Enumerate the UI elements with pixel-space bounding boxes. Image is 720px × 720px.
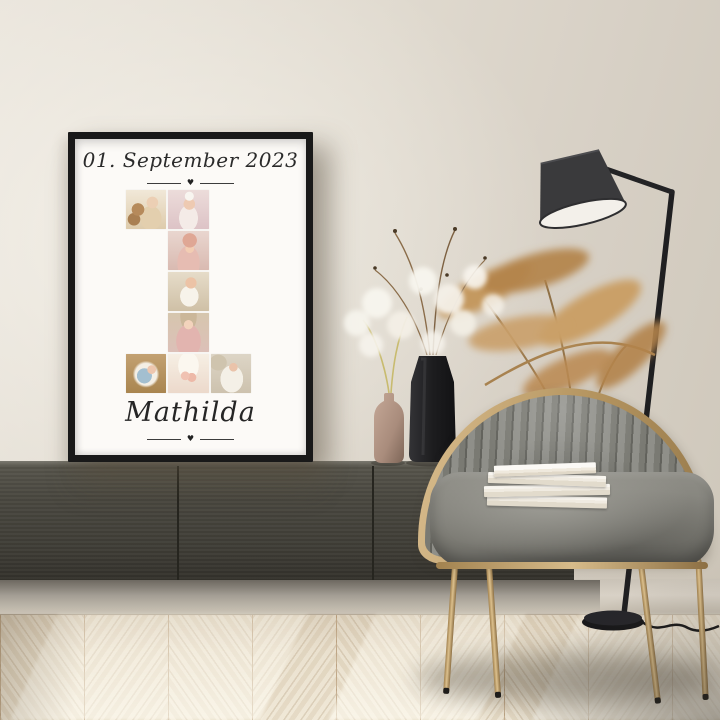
photo-baby-with-teddy <box>126 190 166 229</box>
floor-plank-column <box>0 615 84 720</box>
photo-collage <box>126 190 251 393</box>
divider-line <box>147 183 181 184</box>
divider-line <box>200 183 234 184</box>
sideboard-door-seam <box>177 466 179 580</box>
header-divider: ♥ <box>75 179 306 187</box>
heart-icon: ♥ <box>187 435 194 443</box>
poster-date-text: 01. September 2023 <box>75 148 306 172</box>
photo-newborn-white-basket <box>211 354 251 393</box>
floor-plank-column <box>84 615 168 720</box>
photo-newborn-pink-swaddle <box>168 313 208 352</box>
poster-paper: 01. September 2023 ♥ Mathilda ♥ <box>75 139 306 455</box>
floor-plank-column <box>252 615 336 720</box>
chair-frame-rim <box>436 562 708 569</box>
poster-frame: 01. September 2023 ♥ Mathilda ♥ <box>68 132 313 462</box>
corner-shadow <box>500 570 720 720</box>
photo-baby-bow-headband <box>168 190 208 229</box>
divider-line <box>200 439 234 440</box>
book-stack <box>484 464 614 510</box>
photo-baby-feet <box>168 354 208 393</box>
divider-line <box>147 439 181 440</box>
footer-divider: ♥ <box>75 435 306 443</box>
photo-baby-blue-basket <box>126 354 166 393</box>
photo-baby-pink-beanie <box>168 231 208 270</box>
room-scene: 01. September 2023 ♥ Mathilda ♥ <box>0 0 720 720</box>
floor-plank-column <box>336 615 420 720</box>
sideboard-door-seam <box>372 466 374 580</box>
photo-baby-crawling <box>168 272 208 311</box>
taupe-bottle-vase <box>374 393 404 463</box>
heart-icon: ♥ <box>187 179 194 187</box>
poster-name-text: Mathilda <box>75 397 306 428</box>
floor-plank-column <box>168 615 252 720</box>
